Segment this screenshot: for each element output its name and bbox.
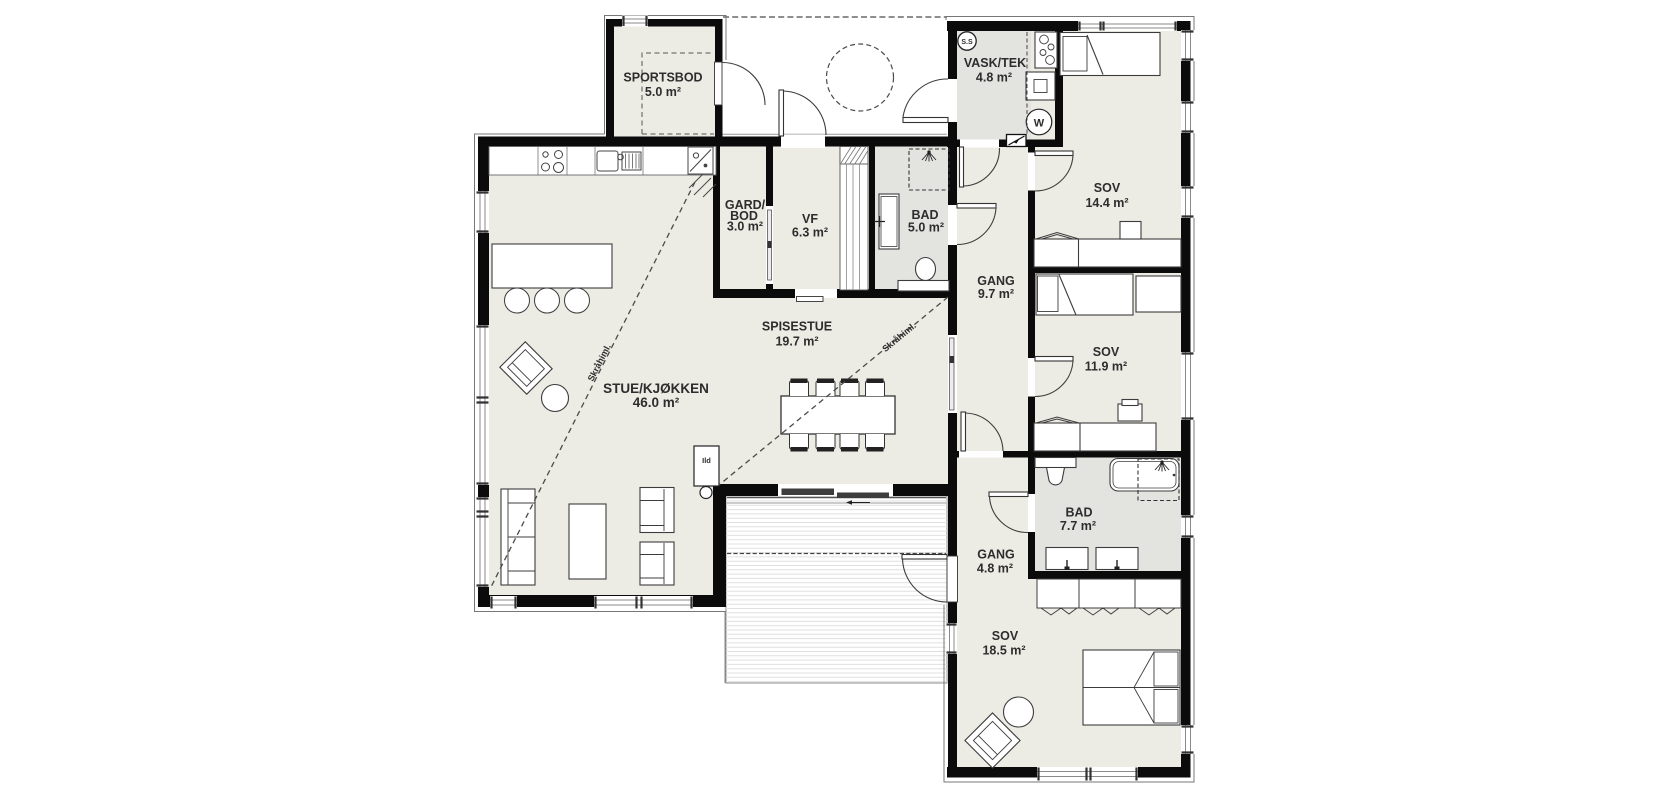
svg-text:7.7 m²: 7.7 m² <box>1060 519 1096 533</box>
svg-text:19.7 m²: 19.7 m² <box>775 335 818 349</box>
svg-text:11.9 m²: 11.9 m² <box>1085 360 1127 374</box>
svg-text:5.0 m²: 5.0 m² <box>908 221 944 235</box>
svg-text:GANG: GANG <box>977 548 1015 562</box>
svg-text:14.4 m²: 14.4 m² <box>1085 196 1128 210</box>
svg-text:STUE/KJØKKEN: STUE/KJØKKEN <box>603 381 709 396</box>
svg-text:18.5 m²: 18.5 m² <box>982 644 1025 658</box>
svg-text:4.8 m²: 4.8 m² <box>977 562 1013 576</box>
svg-text:SOV: SOV <box>992 629 1019 643</box>
svg-text:3.0 m²: 3.0 m² <box>727 220 763 234</box>
svg-text:6.3 m²: 6.3 m² <box>792 226 828 240</box>
svg-text:GANG: GANG <box>977 274 1015 288</box>
svg-text:VF: VF <box>802 212 818 226</box>
svg-text:5.0 m²: 5.0 m² <box>645 85 681 99</box>
svg-text:SOV: SOV <box>1093 345 1120 359</box>
svg-text:SOV: SOV <box>1094 181 1121 195</box>
svg-text:SPISESTUE: SPISESTUE <box>762 320 832 334</box>
svg-text:W: W <box>1034 118 1045 130</box>
svg-text:Ild: Ild <box>702 456 711 465</box>
svg-text:BAD: BAD <box>1065 506 1092 520</box>
svg-text:VASK/TEK: VASK/TEK <box>964 56 1026 70</box>
svg-text:SPORTSBOD: SPORTSBOD <box>623 71 702 85</box>
svg-text:46.0 m²: 46.0 m² <box>633 395 680 410</box>
svg-text:9.7 m²: 9.7 m² <box>978 287 1014 301</box>
svg-text:S.S: S.S <box>961 39 973 46</box>
svg-text:4.8 m²: 4.8 m² <box>976 71 1012 85</box>
